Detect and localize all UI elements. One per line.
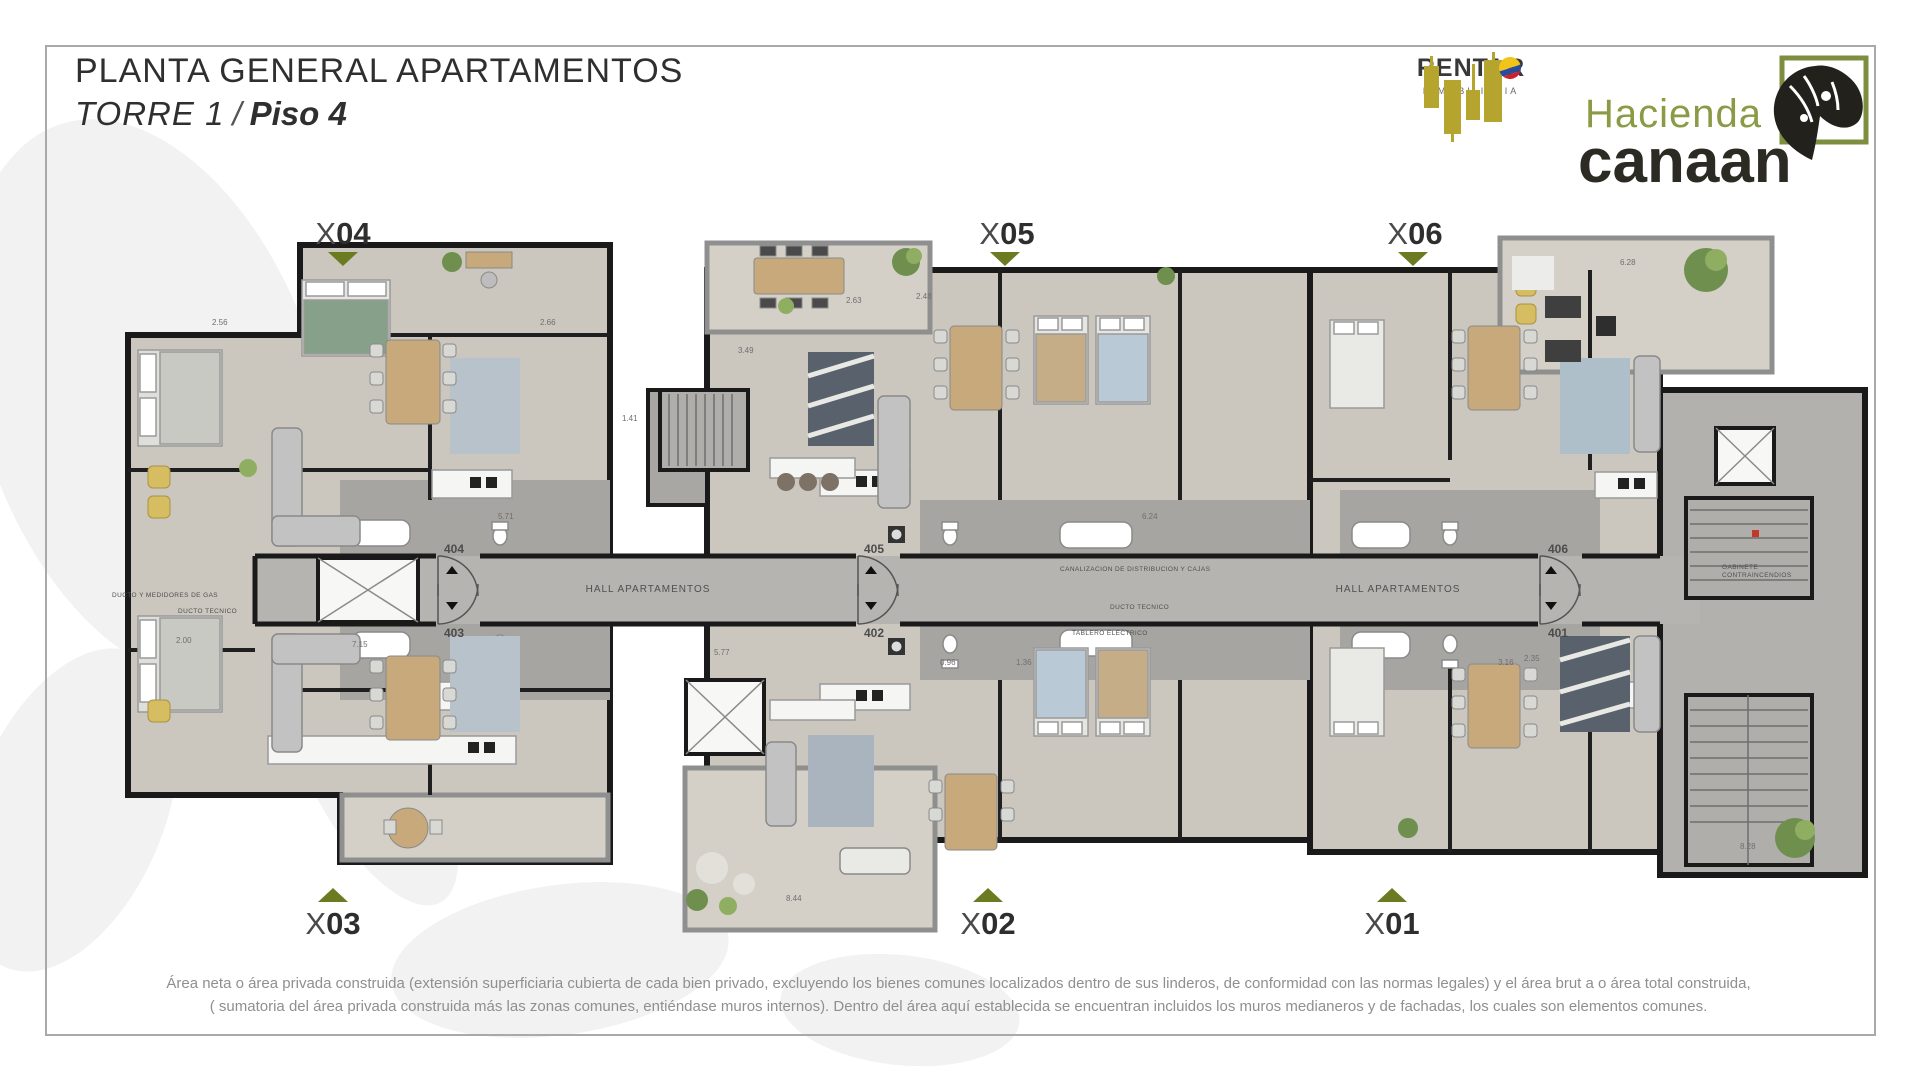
- tower-label: TORRE 1: [75, 95, 224, 132]
- unit-pointer-x03: [318, 888, 348, 902]
- subtitle-separator: /: [224, 95, 249, 132]
- unit-pointer-x01: [1377, 888, 1407, 902]
- unit-label-x02: X02: [960, 906, 1015, 942]
- door-number-405: 405: [864, 542, 884, 556]
- dimension-label: 0.96: [940, 658, 956, 667]
- dimension-label: 2.66: [540, 318, 556, 327]
- annotation-electrical: TABLERO ELECTRICO: [1072, 630, 1148, 637]
- dimension-label: 2.63: [846, 296, 862, 305]
- disclaimer-line-1: Área neta o área privada construida (ext…: [60, 972, 1857, 995]
- door-number-401: 401: [1548, 626, 1568, 640]
- dimension-label: 2.56: [212, 318, 228, 327]
- unit-label-x04: X04: [315, 216, 370, 252]
- unit-pointer-x06: [1398, 252, 1428, 266]
- page-title: PLANTA GENERAL APARTAMENTOS: [75, 52, 683, 91]
- dimension-label: 2.48: [916, 292, 932, 301]
- dimension-label: 3.49: [738, 346, 754, 355]
- unit-pointer-x05: [990, 252, 1020, 266]
- dimension-label: 8.44: [786, 894, 802, 903]
- unit-pointer-x04: [328, 252, 358, 266]
- monstera-leaf-icon: [1760, 52, 1872, 168]
- annotation-gas-duct: DUCTO Y MEDIDORES DE GAS: [112, 592, 218, 599]
- unit-label-x03: X03: [305, 906, 360, 942]
- hall-label-right: HALL APARTAMENTOS: [1336, 584, 1461, 595]
- unit-label-x05: X05: [979, 216, 1034, 252]
- unit-pointer-x02: [973, 888, 1003, 902]
- door-number-406: 406: [1548, 542, 1568, 556]
- page: PLANTA GENERAL APARTAMENTOS TORRE 1/Piso…: [0, 0, 1920, 1080]
- unit-label-x06: X06: [1387, 216, 1442, 252]
- rentar-logo: RENTAR INMOBILIARIA: [1406, 52, 1536, 96]
- door-number-404: 404: [444, 542, 464, 556]
- dimension-label: 6.28: [1620, 258, 1636, 267]
- dimension-label: 1.41: [622, 414, 638, 423]
- disclaimer-line-2: ( sumatoria del área privada construida …: [60, 995, 1857, 1018]
- dimension-label: 3.16: [1498, 658, 1514, 667]
- annotation-distribution: CANALIZACION DE DISTRIBUCION Y CAJAS: [1060, 566, 1210, 573]
- annotation-tech-duct: DUCTO TECNICO: [178, 608, 237, 615]
- hall-label-left: HALL APARTAMENTOS: [586, 584, 711, 595]
- page-subtitle: TORRE 1/Piso 4: [75, 95, 347, 133]
- dimension-label: 7.15: [352, 640, 368, 649]
- dimension-label: 1.36: [1016, 658, 1032, 667]
- disclaimer: Área neta o área privada construida (ext…: [60, 972, 1857, 1019]
- door-number-402: 402: [864, 626, 884, 640]
- annotation-fire-cabinet: GABINETE CONTRAINCENDIOS: [1722, 564, 1802, 581]
- annotation-tech-duct-2: DUCTO TECNICO: [1110, 604, 1169, 611]
- dimension-label: 5.77: [714, 648, 730, 657]
- dimension-label: 2.35: [1524, 654, 1540, 663]
- dimension-label: 6.24: [1142, 512, 1158, 521]
- floor-label: Piso 4: [250, 95, 347, 132]
- unit-label-x01: X01: [1364, 906, 1419, 942]
- dimension-label: 5.71: [498, 512, 514, 521]
- dimension-label: 8.28: [1740, 842, 1756, 851]
- rentar-bars-icon: [1406, 52, 1522, 148]
- dimension-label: 2.00: [176, 636, 192, 645]
- door-number-403: 403: [444, 626, 464, 640]
